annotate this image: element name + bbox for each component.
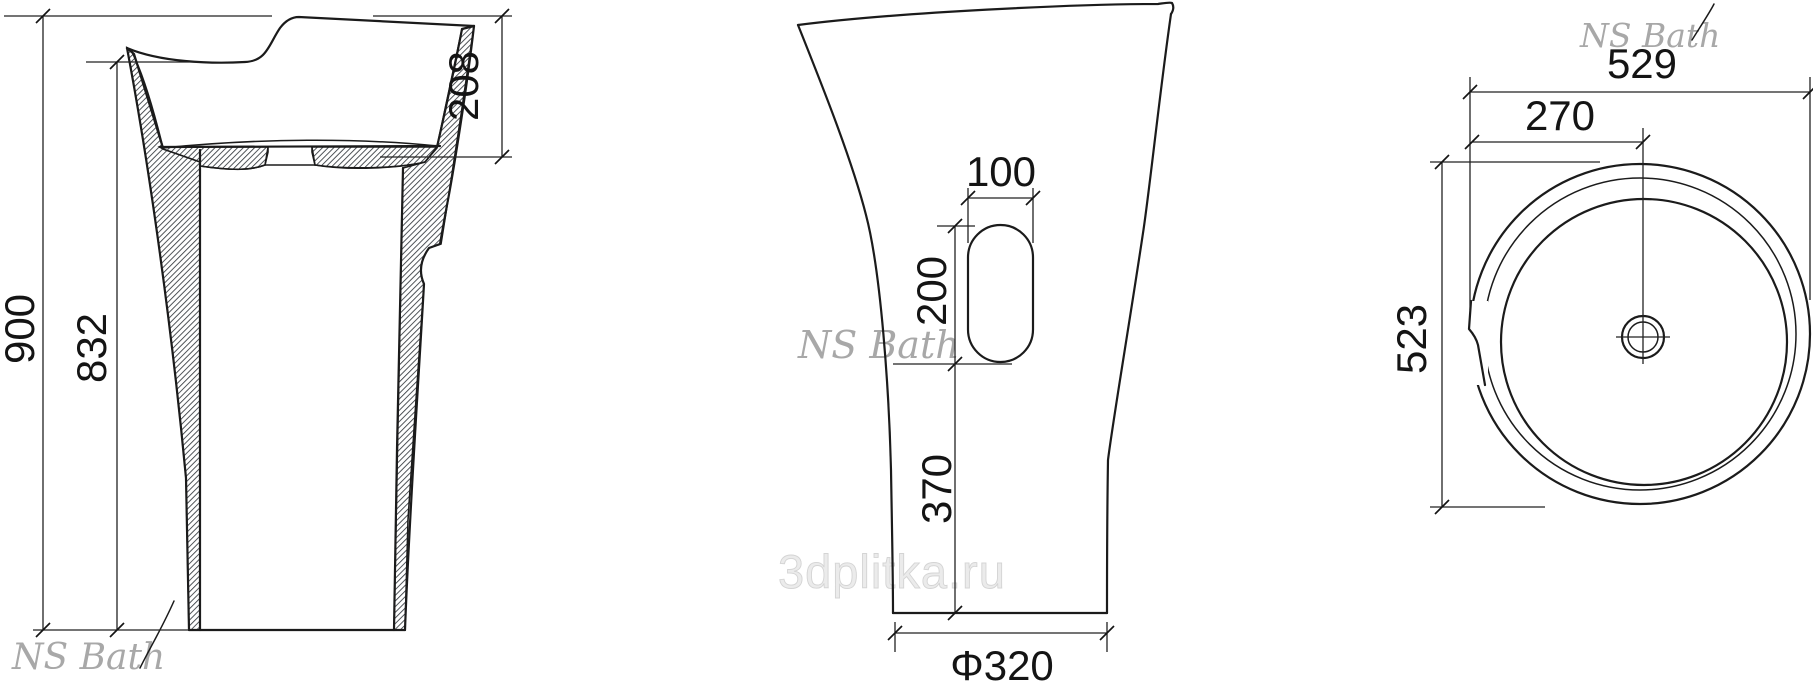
dim-base-diameter: Φ320 <box>950 642 1054 684</box>
top-outline <box>1461 128 1810 504</box>
side-section-view: 900 832 208 <box>0 9 512 637</box>
top-view: 529 270 523 <box>1388 40 1813 514</box>
outer-rim-circle <box>1470 164 1810 504</box>
dim-drain-offset: 270 <box>1525 92 1595 139</box>
top-view-dimensions: 529 270 523 <box>1388 40 1813 514</box>
left-wall-section <box>127 48 200 630</box>
dim-overall-depth: 523 <box>1388 304 1435 374</box>
dim-total-height: 900 <box>0 294 43 364</box>
side-view-dimensions: 900 832 208 <box>0 9 512 637</box>
technical-drawing-page: NS Bath NS Bath NS Bath 3dplitka.ru <box>0 0 1813 684</box>
rim-notch-mask <box>1461 301 1488 385</box>
pedestal-basin-drawing: NS Bath NS Bath NS Bath 3dplitka.ru <box>0 0 1813 684</box>
inner-rim-circle <box>1484 178 1796 490</box>
dim-basin-depth: 208 <box>440 51 487 121</box>
front-outline <box>798 3 1173 613</box>
dim-slot-width: 100 <box>966 148 1036 195</box>
dim-slot-bottom-offset: 370 <box>913 454 960 524</box>
watermark-brand-center: NS Bath <box>797 323 960 367</box>
dim-slot-length: 200 <box>908 256 955 326</box>
dim-overall-width: 529 <box>1607 40 1677 87</box>
front-view-dimensions: 100 200 370 Φ320 <box>888 148 1114 684</box>
bowl-circle <box>1501 199 1787 485</box>
dim-front-rim-height: 832 <box>68 313 115 383</box>
overflow-slot <box>968 225 1033 362</box>
watermark-brand-bottom-left: NS Bath <box>11 637 165 678</box>
